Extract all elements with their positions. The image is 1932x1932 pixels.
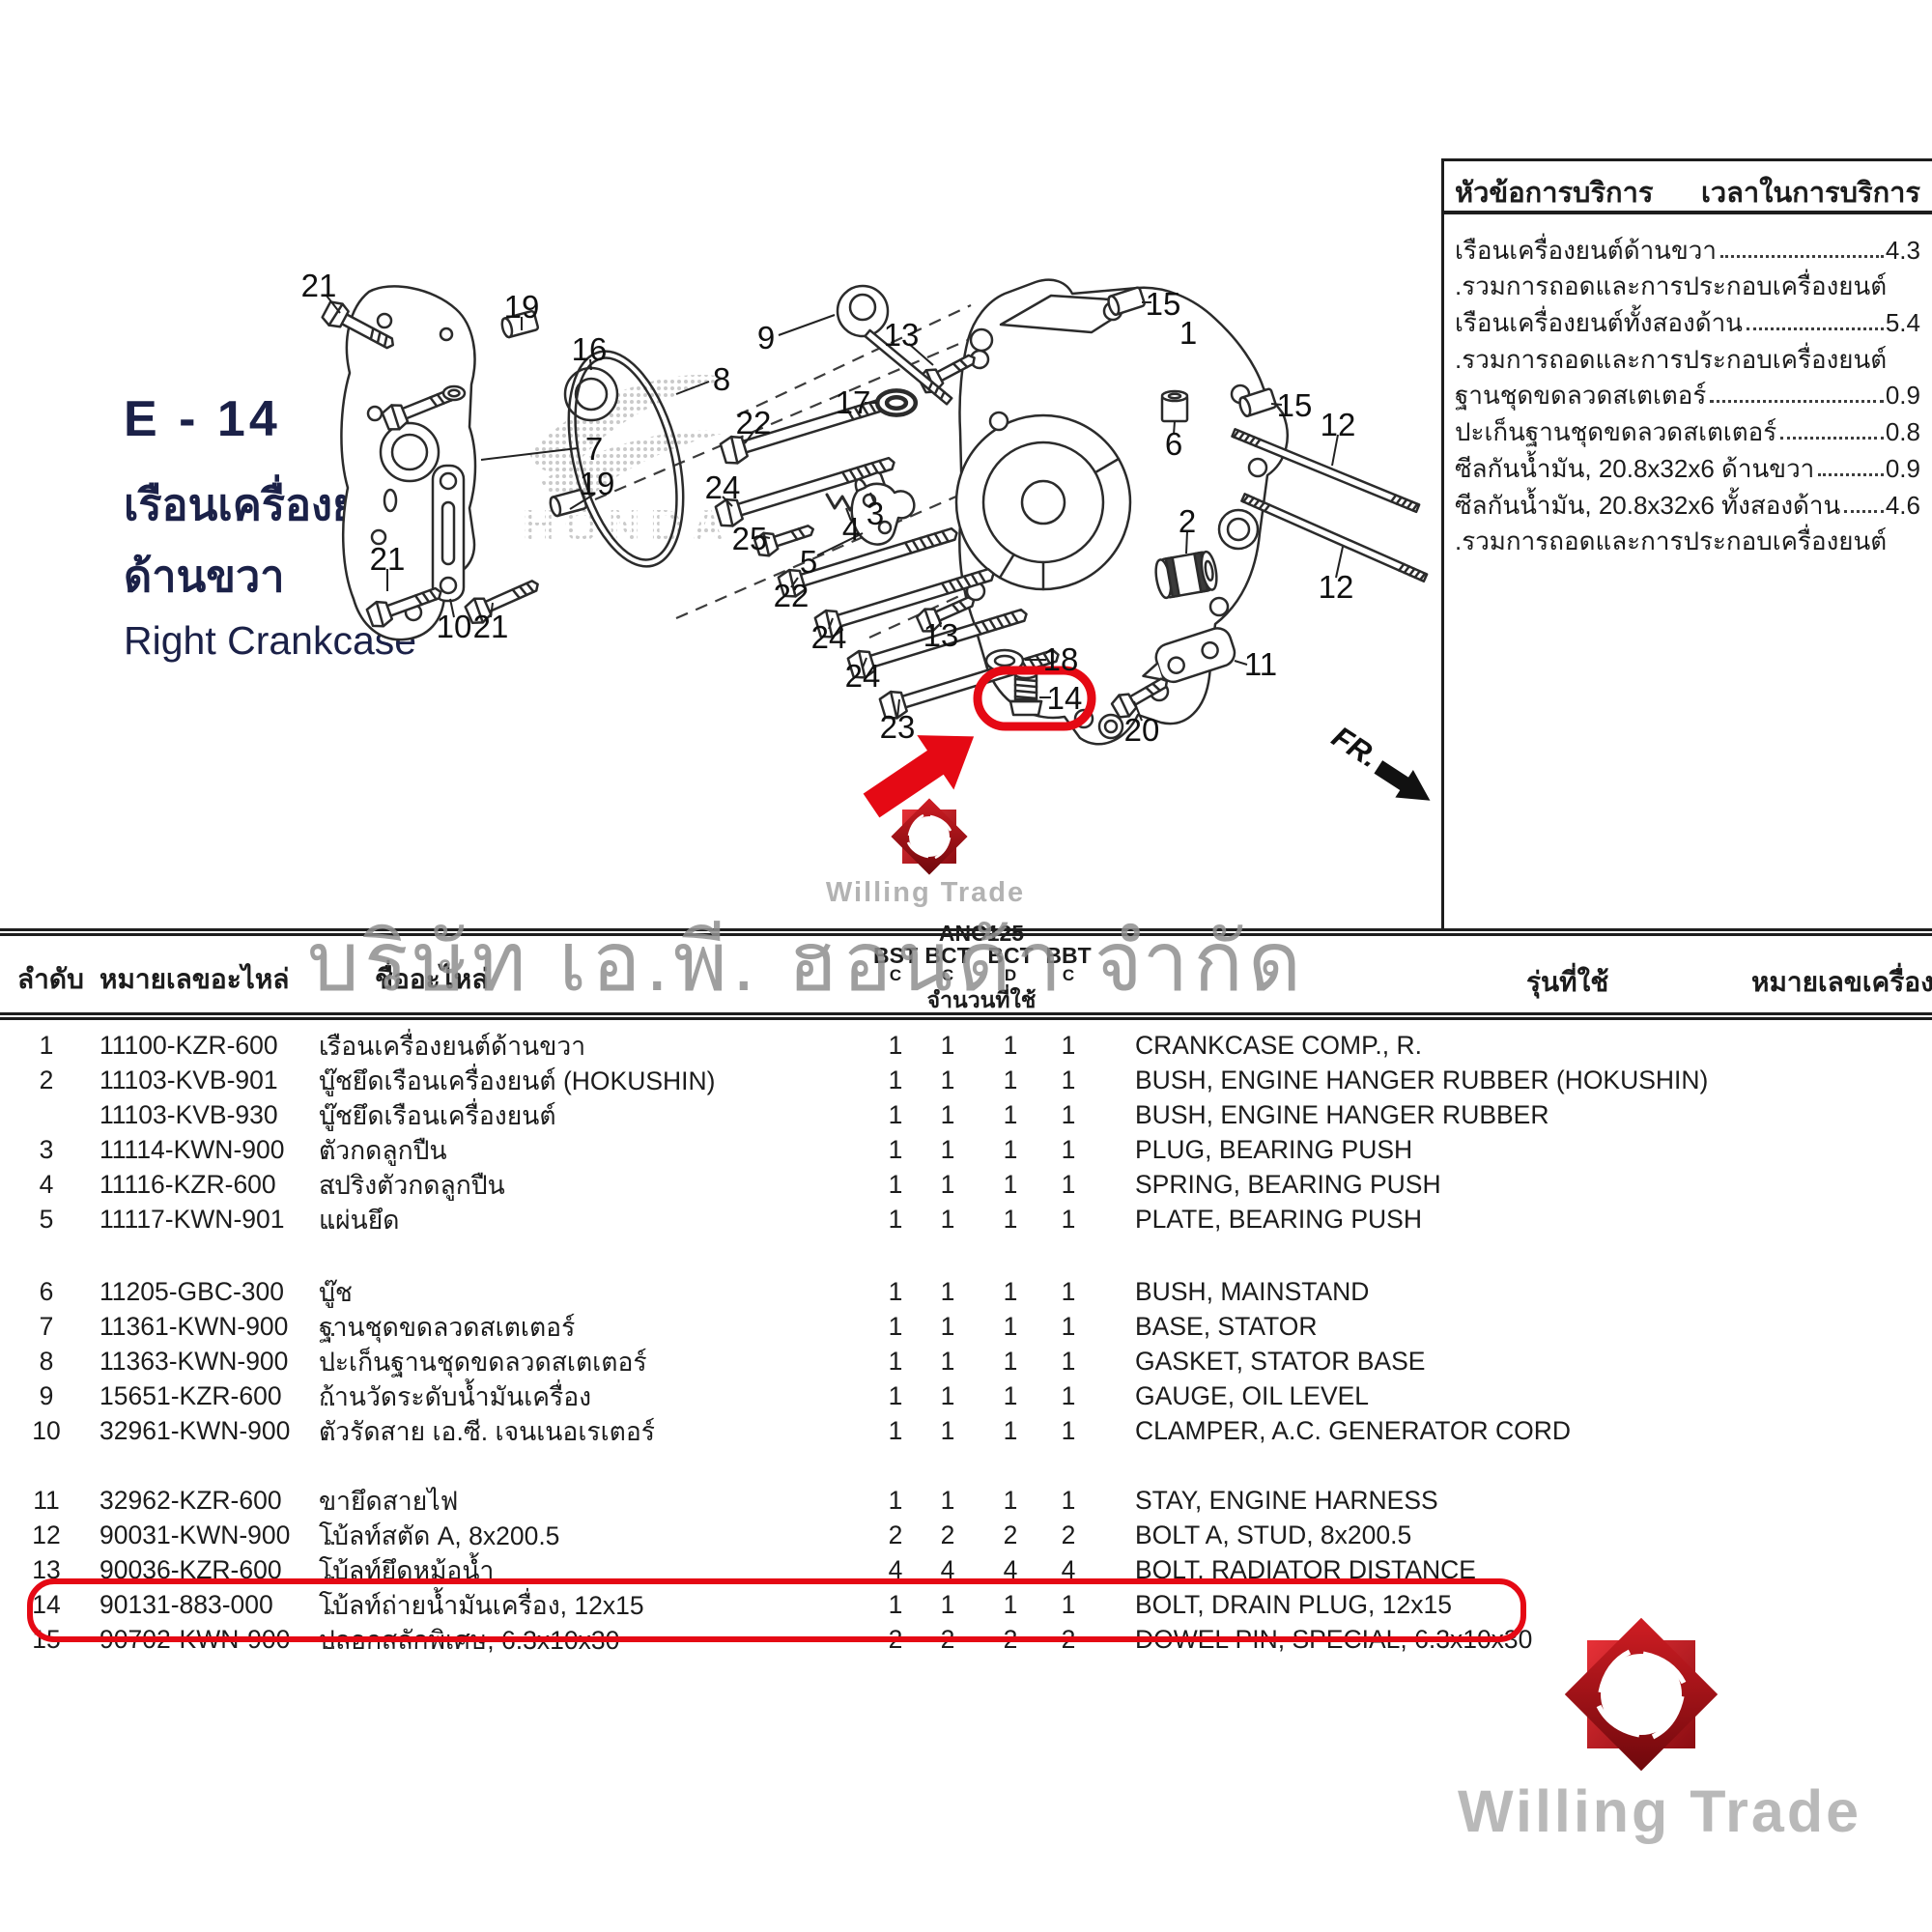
part-label-22: 22	[736, 405, 772, 440]
part-label-21: 21	[301, 268, 337, 303]
service-box-top-border	[1441, 158, 1932, 161]
willing-trade-small-text: Willing Trade	[810, 877, 1041, 909]
service-row: .รวมการถอดและการประกอบเครื่องยนต์	[1455, 339, 1920, 376]
part-label-13: 13	[923, 617, 959, 653]
part-label-5: 5	[800, 544, 817, 580]
honda-watermark: HONDA	[523, 375, 734, 551]
part-label-3: 3	[867, 496, 884, 531]
company-watermark-text: บริษัท เอ.พี. ฮอนด้า จำกัด	[307, 896, 1306, 1027]
part-label-1: 1	[1179, 315, 1197, 351]
service-row: ปะเก็นฐานชุดขดลวดสเตเตอร์0.8	[1455, 412, 1920, 448]
service-row: เรือนเครื่องยนต์ด้านขวา4.3	[1455, 230, 1920, 267]
fr-direction: FR.	[1324, 720, 1442, 814]
part-label-20: 20	[1124, 712, 1160, 748]
part-label-24: 24	[845, 658, 881, 694]
service-row: ฐานชุดขดลวดสเตเตอร์0.9	[1455, 376, 1920, 412]
fr-label: FR.	[1326, 720, 1385, 775]
service-topic-header: หัวข้อการบริการ	[1455, 170, 1653, 214]
part-label-14: 14	[1047, 680, 1083, 716]
fr-arrow-icon	[1370, 753, 1439, 814]
part-label-12: 12	[1321, 407, 1356, 442]
catalog-page: { "page": { "code": "E - 14", "title_tha…	[0, 0, 1932, 1932]
part-label-23: 23	[880, 709, 916, 745]
service-time-list: เรือนเครื่องยนต์ด้านขวา4.3.รวมการถอดและก…	[1455, 230, 1920, 557]
part-label-16: 16	[572, 331, 608, 367]
part-label-19: 19	[504, 289, 540, 325]
part-label-17: 17	[836, 384, 871, 420]
part-label-13: 13	[884, 317, 920, 353]
part-label-24: 24	[705, 469, 741, 505]
part-label-12: 12	[1319, 569, 1354, 605]
service-row: ซีลกันน้ำมัน, 20.8x32x6 ทั้งสองด้าน4.6	[1455, 485, 1920, 522]
bush-6	[1162, 391, 1187, 421]
part-label-25: 25	[732, 521, 768, 556]
service-row: .รวมการถอดและการประกอบเครื่องยนต์	[1455, 522, 1920, 558]
part-label-15: 15	[1277, 387, 1313, 423]
part-label-8: 8	[713, 361, 730, 397]
willing-trade-logo-small	[891, 798, 967, 874]
part-label-2: 2	[1179, 503, 1196, 539]
plate-10	[433, 466, 464, 601]
willing-trade-logo-large	[1565, 1618, 1718, 1771]
service-row: .รวมการถอดและการประกอบเครื่องยนต์	[1455, 267, 1920, 303]
part-label-24: 24	[811, 619, 847, 655]
part-label-10: 10	[437, 609, 472, 644]
part-label-19: 19	[580, 466, 615, 501]
part-label-9: 9	[757, 320, 775, 355]
service-row: เรือนเครื่องยนต์ทั้งสองด้าน5.4	[1455, 302, 1920, 339]
service-box-left-border	[1441, 158, 1444, 931]
part-label-21: 21	[370, 541, 406, 577]
drain-bolt-14	[1010, 670, 1041, 715]
service-box-header: หัวข้อการบริการ เวลาในการบริการ	[1455, 170, 1920, 214]
service-time-header: เวลาในการบริการ	[1701, 170, 1920, 214]
part-label-7: 7	[585, 431, 603, 467]
part-label-15: 15	[1146, 286, 1181, 322]
part-label-6: 6	[1165, 426, 1182, 462]
service-row: ซีลกันน้ำมัน, 20.8x32x6 ด้านขวา0.9	[1455, 448, 1920, 485]
part-label-4: 4	[842, 511, 860, 547]
part-label-11: 11	[1244, 646, 1277, 682]
part-label-22: 22	[774, 578, 810, 613]
part-label-21: 21	[473, 609, 509, 644]
willing-trade-large-text: Willing Trade	[1447, 1777, 1872, 1845]
part-label-18: 18	[1043, 641, 1079, 677]
